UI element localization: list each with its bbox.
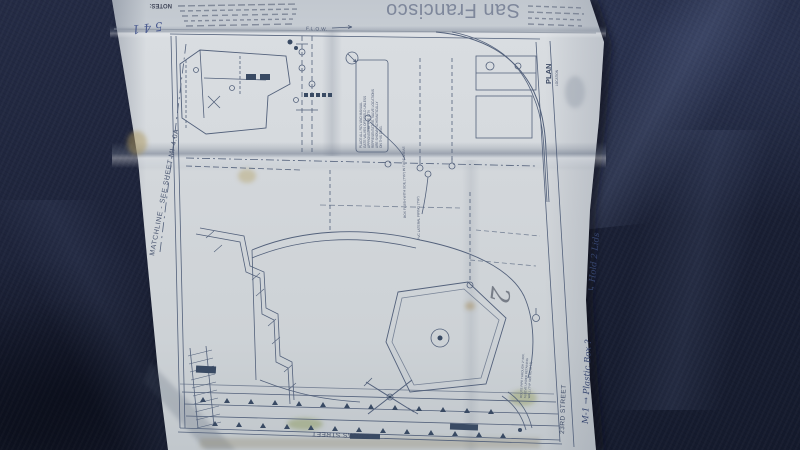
plan-title: PLAN <box>544 64 553 84</box>
plan-subtitle: LOCATION <box>555 69 559 86</box>
callout-pvc-lateral: PVC LATERAL PIPING (TYP) <box>416 196 421 240</box>
handwritten-page-number: 2 <box>483 284 515 305</box>
notes-heading: NOTES: <box>149 2 172 8</box>
svg-text:ON THIS DWG.: ON THIS DWG. <box>379 125 383 148</box>
photo-of-blueprint: San Francisco NOTES: 5 4 1 MATCHLINE - S… <box>0 0 800 450</box>
blueprint-sheet: San Francisco NOTES: 5 4 1 MATCHLINE - S… <box>0 0 800 450</box>
flow-label: F.L.O.W. <box>306 26 328 33</box>
city-title: San Francisco <box>386 0 520 21</box>
